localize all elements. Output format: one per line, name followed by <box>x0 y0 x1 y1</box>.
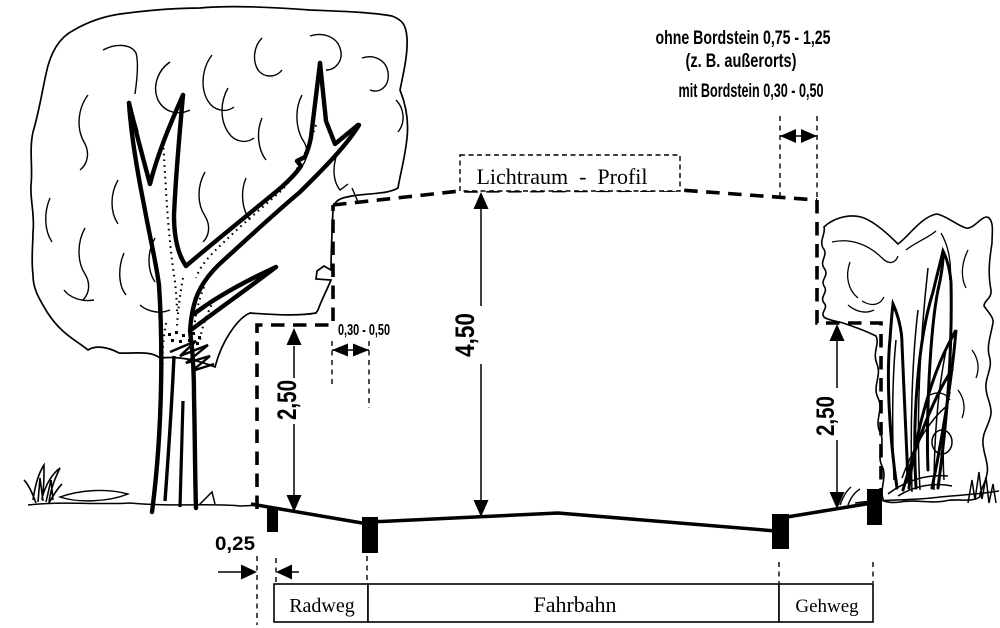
svg-text:Lichtraum - Profil: Lichtraum - Profil <box>476 164 647 189</box>
svg-text:Fahrbahn: Fahrbahn <box>533 592 616 617</box>
svg-text:ohne Bordstein 0,75 - 1,25: ohne Bordstein 0,75 - 1,25 <box>656 28 831 49</box>
svg-text:mit Bordstein 0,30 - 0,50: mit Bordstein 0,30 - 0,50 <box>679 81 824 102</box>
svg-text:2,50: 2,50 <box>272 380 302 420</box>
svg-text:4,50: 4,50 <box>450 313 480 357</box>
svg-text:Radweg: Radweg <box>289 595 355 617</box>
svg-text:Gehweg: Gehweg <box>795 596 859 617</box>
svg-text:(z. B. außerorts): (z. B. außerorts) <box>686 51 797 72</box>
svg-text:0,30 - 0,50: 0,30 - 0,50 <box>338 322 390 339</box>
svg-text:2,50: 2,50 <box>812 396 840 436</box>
svg-text:0,25: 0,25 <box>215 534 255 555</box>
